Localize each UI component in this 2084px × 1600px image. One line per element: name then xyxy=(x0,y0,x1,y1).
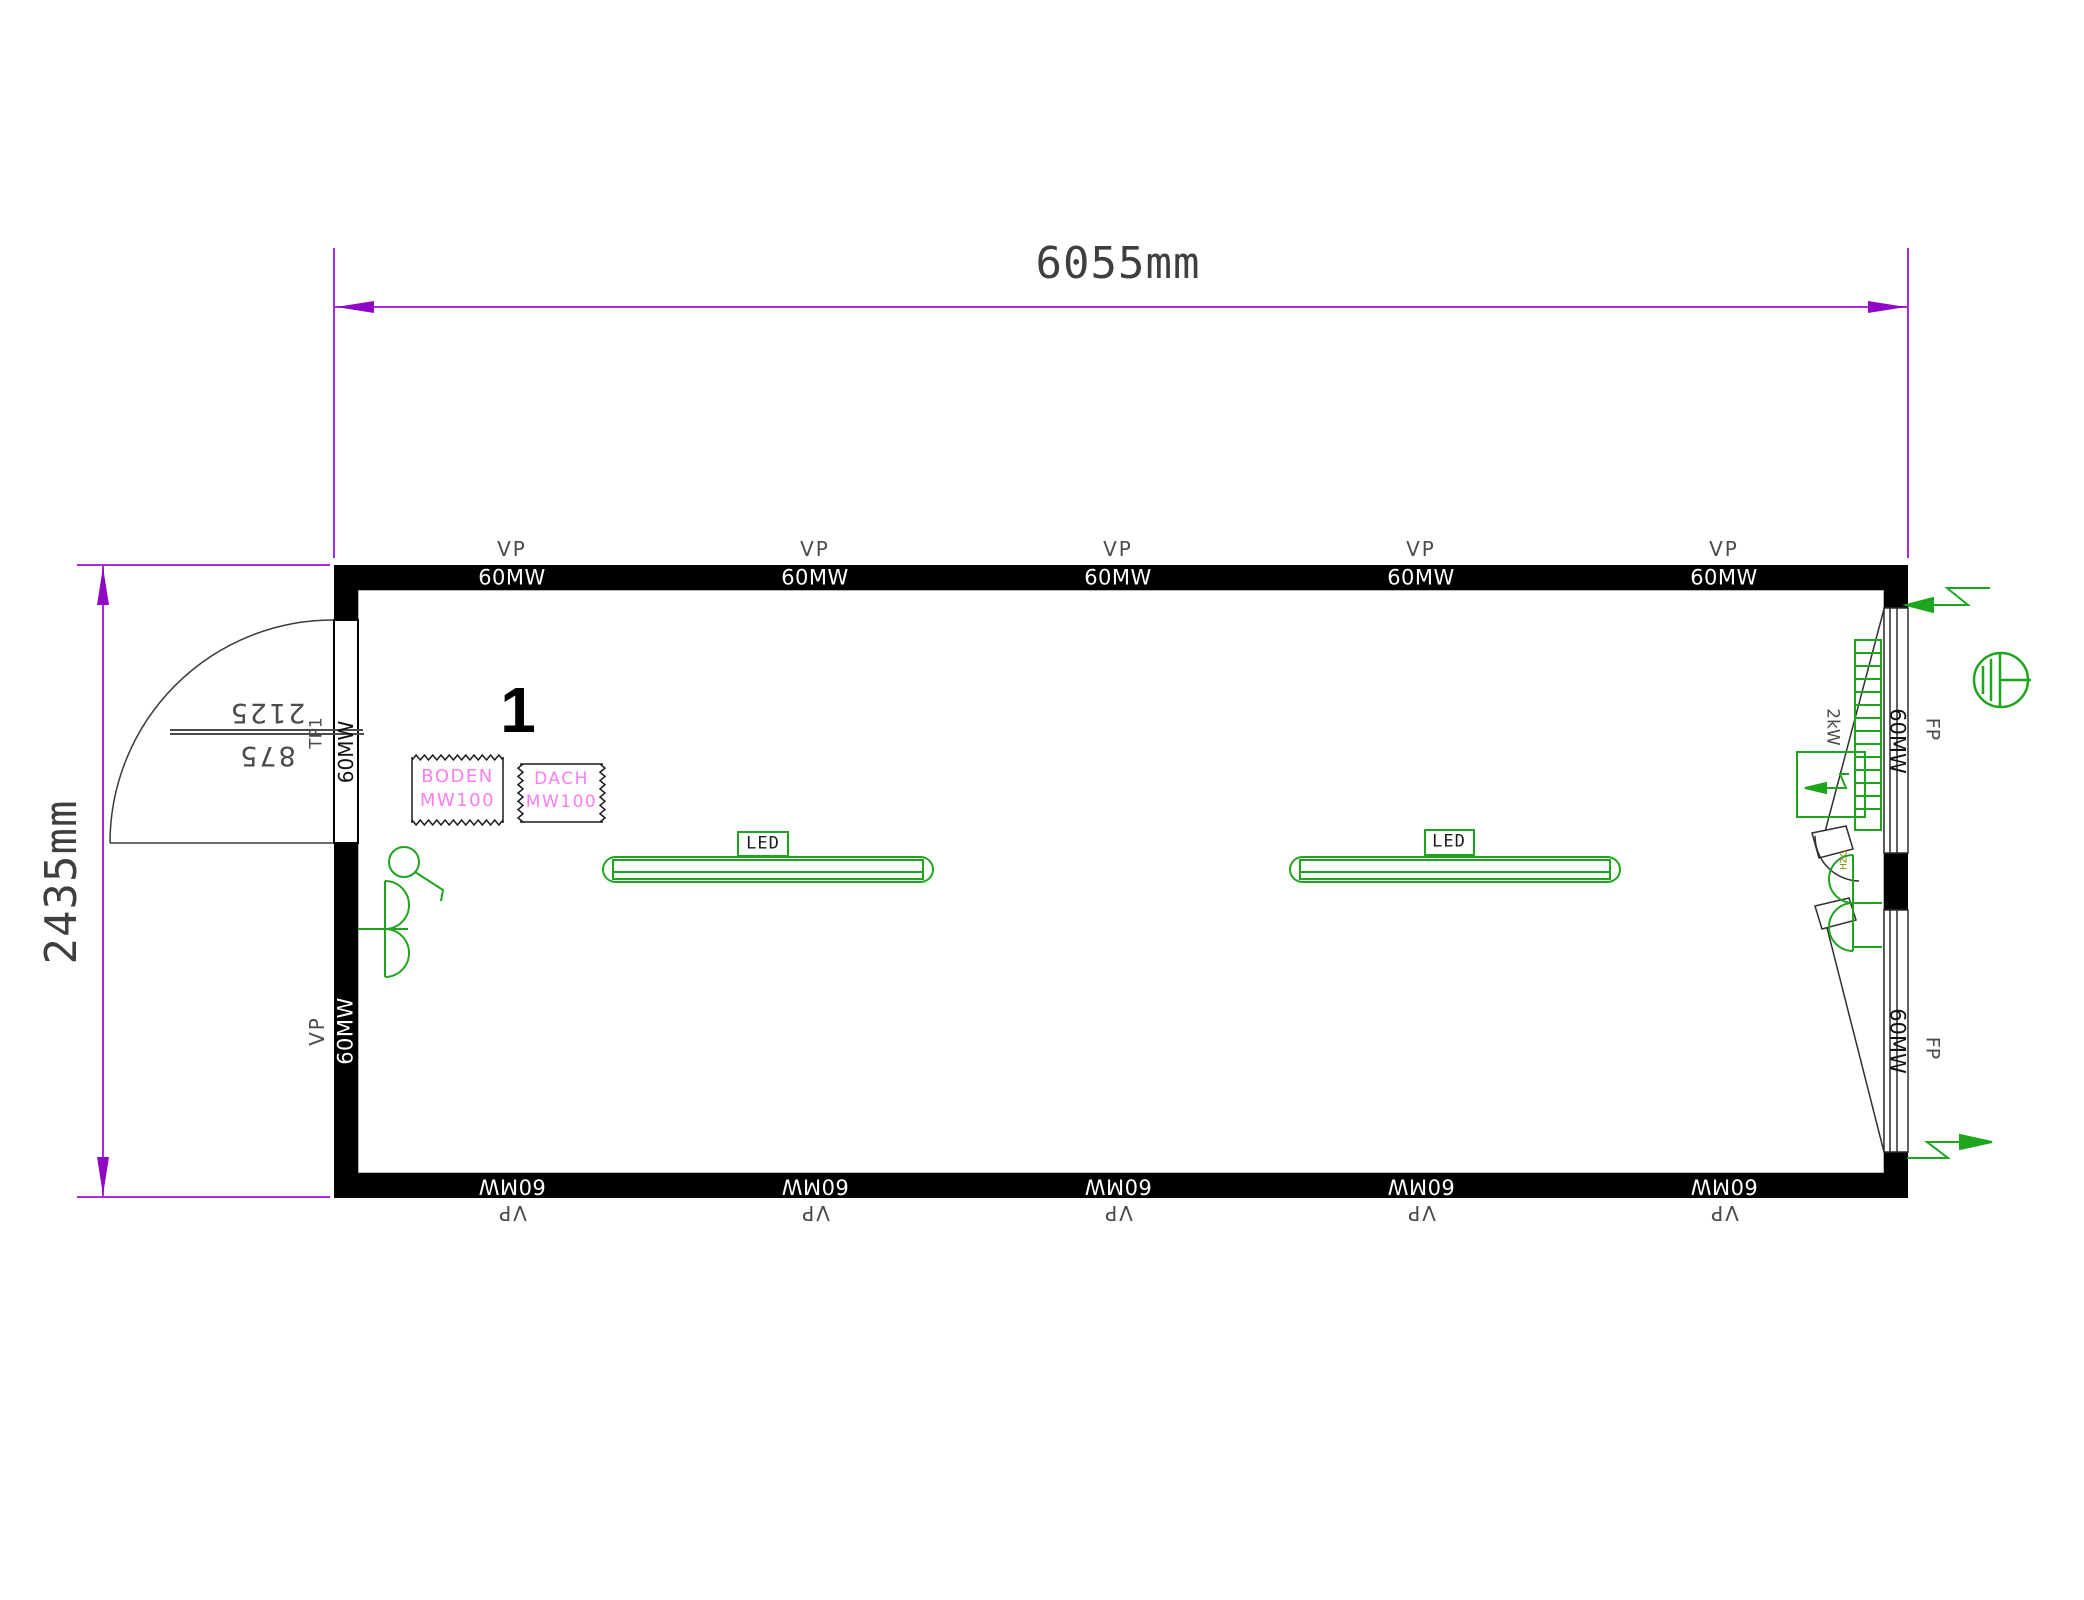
power-flash-arrowhead xyxy=(1805,783,1826,793)
vp-label-top-5: VP xyxy=(1709,539,1739,559)
led-label-2: LED xyxy=(1432,834,1466,851)
vp-label-bottom-5: VP xyxy=(1709,1203,1739,1223)
supply-arrow-bottom xyxy=(1907,1135,1992,1158)
panel-label-bottom-2: 60MW xyxy=(781,1176,849,1197)
double-socket-left xyxy=(358,881,409,977)
dim-arrow-up xyxy=(97,567,109,605)
vp-label-bottom-4: VP xyxy=(1406,1203,1436,1223)
dim-arrow-left xyxy=(336,301,374,313)
window-upper-panel-label: 60MW xyxy=(1887,708,1908,774)
room-interior-outline xyxy=(358,590,1884,1173)
floor-plan-canvas: 6055mm 2435mm VP VP VP VP VP 60MW 60MW 6… xyxy=(0,0,2084,1600)
led-label-1: LED xyxy=(746,836,780,853)
supply-arrowhead-top xyxy=(1906,598,1933,612)
panel-label-top-2: 60MW xyxy=(781,568,849,589)
roof-material-label: DACH MW100 xyxy=(520,762,603,826)
vp-label-top-1: VP xyxy=(497,539,527,559)
panel-label-bottom-1: 60MW xyxy=(478,1176,546,1197)
window-lower-panel-label: 60MW xyxy=(1887,1008,1908,1074)
roof-material-line1: DACH xyxy=(520,768,603,791)
vp-label-top-3: VP xyxy=(1103,539,1133,559)
panel-label-bottom-4: 60MW xyxy=(1387,1176,1455,1197)
panel-label-left: 60MW xyxy=(336,997,357,1065)
dim-arrow-right xyxy=(1868,301,1906,313)
dim-arrow-down xyxy=(97,1157,109,1195)
panel-label-bottom-5: 60MW xyxy=(1690,1176,1758,1197)
vp-label-top-2: VP xyxy=(800,539,830,559)
window-upper-fp-label: FP xyxy=(1923,718,1942,740)
roof-material-line2: MW100 xyxy=(520,791,603,814)
window-opening-indicators xyxy=(1812,609,1884,1152)
panel-label-top-4: 60MW xyxy=(1387,568,1455,589)
left-wall-upper-block xyxy=(334,565,358,620)
right-wall-upper-block xyxy=(1884,565,1908,608)
floor-material-label: BODEN MW100 xyxy=(412,757,503,831)
vp-label-left: VP xyxy=(307,1016,327,1046)
supply-arrowhead-bottom xyxy=(1960,1135,1992,1149)
width-dimension-label: 6055mm xyxy=(1036,242,1201,286)
floor-material-line1: BODEN xyxy=(412,765,503,789)
led-tube-inner xyxy=(1300,860,1610,879)
light-symbol-arm xyxy=(415,872,443,901)
window-lower-opening-line xyxy=(1824,916,1884,1152)
panel-label-top-5: 60MW xyxy=(1690,568,1758,589)
right-wall-lower-block xyxy=(1884,1152,1908,1198)
walls xyxy=(334,565,1908,1198)
light-symbol-circle xyxy=(389,847,419,877)
ground-symbol xyxy=(1974,652,2031,708)
heater-tag-label: HZG xyxy=(1841,850,1850,870)
led-tube-inner xyxy=(613,860,923,879)
vp-label-bottom-2: VP xyxy=(800,1203,830,1223)
panel-label-bottom-3: 60MW xyxy=(1084,1176,1152,1197)
room-number: 1 xyxy=(500,678,536,742)
window-lower-fp-label: FP xyxy=(1923,1037,1942,1059)
wall-light-switch-symbol xyxy=(389,847,443,901)
heater-power-label: 2kW xyxy=(1824,708,1841,745)
floor-material-line2: MW100 xyxy=(412,789,503,813)
height-dimension-label: 2435mm xyxy=(40,800,84,965)
door-panel-label: 60MW xyxy=(336,721,356,783)
supply-arrow-top xyxy=(1906,588,1990,612)
vp-label-bottom-1: VP xyxy=(497,1203,527,1223)
vp-label-bottom-3: VP xyxy=(1103,1203,1133,1223)
electrical-symbols xyxy=(358,588,2031,1158)
heater-rungs xyxy=(1855,653,1881,809)
door-tag-label: TP1 xyxy=(309,717,326,748)
vp-label-top-4: VP xyxy=(1406,539,1436,559)
right-wall-mid-block xyxy=(1884,853,1908,910)
panel-label-top-3: 60MW xyxy=(1084,568,1152,589)
panel-label-top-1: 60MW xyxy=(478,568,546,589)
